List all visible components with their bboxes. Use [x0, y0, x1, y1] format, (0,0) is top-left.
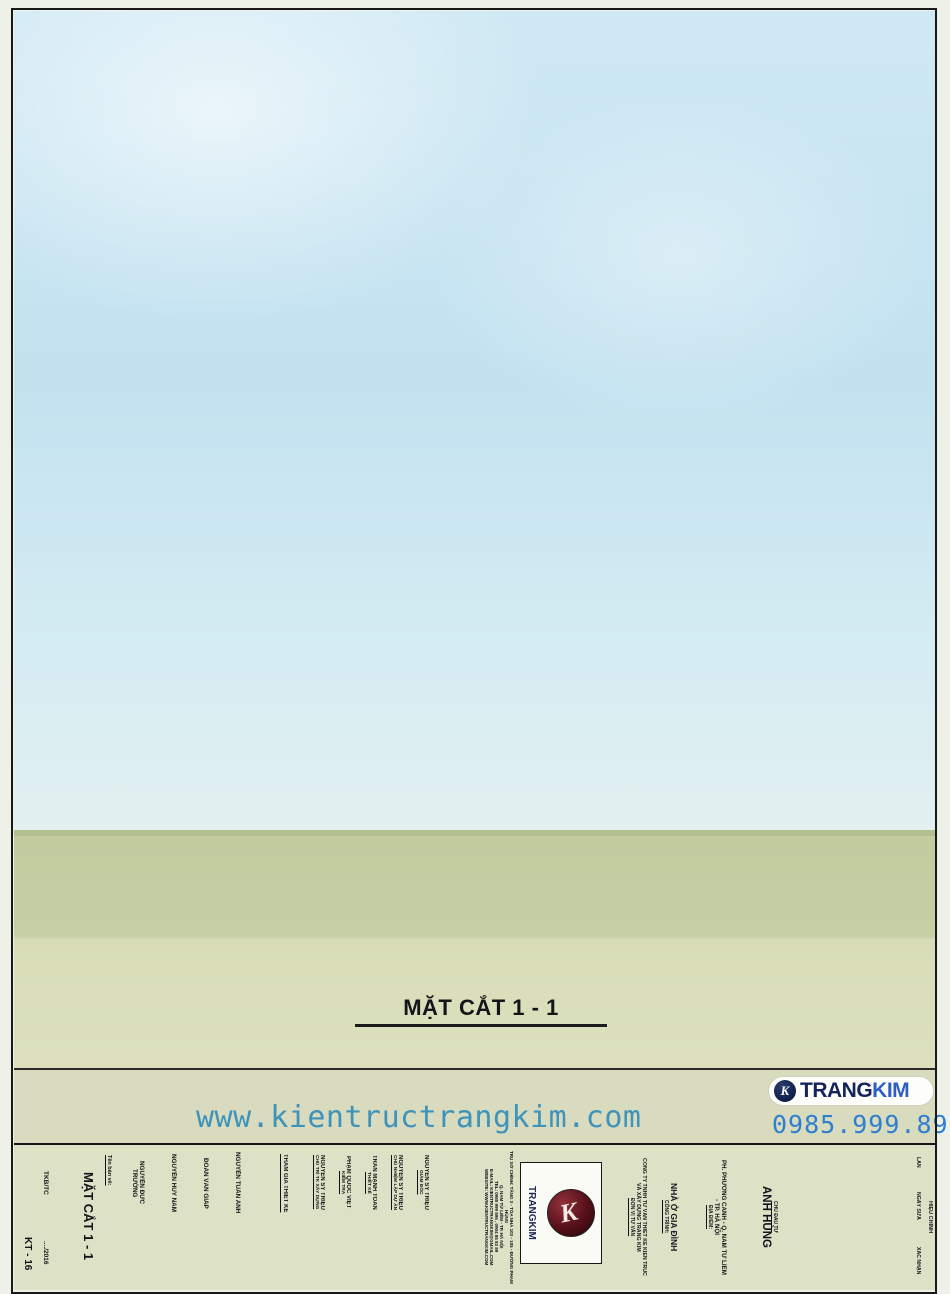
role-label: CHỦ NHIỆM LẬP DỰ ÁN	[392, 1148, 397, 1217]
sheet-date: ..../2016	[34, 1221, 49, 1285]
watermark-url: www.kientructrangkim.com	[196, 1100, 641, 1135]
consultant-line: CÔNG TY TNHH TƯ VẤN THIẾT KẾ KIẾN TRÚC	[641, 1148, 647, 1286]
company-info-line: TRỤ SỞ CHÍNH: TẦNG 3 - TÒA NHÀ 103 - 105…	[504, 1148, 514, 1286]
client-label: CHỦ ĐẦU TƯ	[772, 1148, 778, 1286]
consultant-label: ĐƠN VỊ TƯ VẤN	[629, 1148, 635, 1286]
logo-text-trang: TRANG	[800, 1079, 872, 1103]
company-info-line: Q. NAM TỪ LIÊM - TP. HÀ NỘI	[499, 1148, 504, 1286]
logo-box: TRANGKIM K	[520, 1162, 602, 1264]
role-name: NGUYỄN SỸ TRIỆU	[397, 1148, 403, 1217]
sky-background	[14, 11, 936, 830]
role-cell: TRẦN MẠNH TOÀN THIẾT KẾ	[353, 1148, 377, 1217]
rev-side-label: HIỆU CHỈNH	[923, 1148, 933, 1286]
rev-col-turn: LẦN	[909, 1149, 921, 1176]
rev-col-date: NGÀY SỬA	[909, 1181, 921, 1231]
role-cell: NGUYỄN SỸ TRIỆU GIÁM ĐỐC	[405, 1148, 429, 1217]
role-cell: PHẠM QUỐC VIỆT KIỂM TRA	[327, 1148, 351, 1217]
trangkim-logo: K TRANG KIM	[768, 1076, 934, 1106]
role-name: PHẠM QUỐC VIỆT	[345, 1148, 351, 1217]
participant-name: NGUYỄN ĐỨC TRƯỜNG	[117, 1149, 145, 1217]
sheet-number: KT - 16	[17, 1221, 33, 1287]
ground-background	[14, 830, 936, 1068]
participant-name: NGUYỄN HUY NAM	[149, 1149, 177, 1217]
phone-number: 0985.999.895	[772, 1110, 950, 1139]
role-name: NGUYỄN SỸ TRIỆU	[319, 1148, 325, 1217]
trangkim-emblem-icon: K	[547, 1189, 595, 1237]
design-stage: TKB/TC	[34, 1150, 49, 1216]
project-label: CÔNG TRÌNH:	[663, 1148, 669, 1286]
role-name: NGUYỄN SỸ TRIỆU	[423, 1148, 429, 1217]
participants-label: THAM GIA THIẾT KẾ	[252, 1149, 288, 1217]
rev-col-confirm: XÁC NHẬN	[909, 1236, 921, 1286]
role-name: TRẦN MẠNH TOÀN	[371, 1148, 377, 1217]
location-cell: PH. PHƯƠNG CANH - Q. NAM TỪ LIÊM - TP. H…	[682, 1148, 727, 1286]
project-cell: NHÀ Ở GIA ĐÌNH CÔNG TRÌNH:	[649, 1148, 679, 1286]
consultant-cell: CÔNG TY TNHH TƯ VẤN THIẾT KẾ KIẾN TRÚC V…	[606, 1148, 647, 1286]
logo-box-text: TRANGKIM	[524, 1168, 537, 1258]
location-label: ĐỊA ĐIỂM:	[707, 1148, 713, 1286]
company-info: TRỤ SỞ CHÍNH: TẦNG 3 - TÒA NHÀ 103 - 105…	[464, 1148, 514, 1286]
participant-name: NGUYỄN TUẤN ANH	[213, 1149, 241, 1217]
role-cell: NGUYỄN SỸ TRIỆU CHỦ NHIỆM LẬP DỰ ÁN	[379, 1148, 403, 1217]
client-name: ANH HÙNG	[760, 1148, 772, 1286]
company-info-line: TEL: 0985 999 895 , 0904 85 83 89	[494, 1148, 499, 1286]
drawing-name: MẶT CẮT 1 - 1	[66, 1147, 96, 1286]
project-name: NHÀ Ở GIA ĐÌNH	[669, 1148, 679, 1286]
logo-text-kim: KIM	[872, 1079, 909, 1103]
trangkim-swirl-icon: K	[774, 1080, 796, 1102]
participant-name: ĐOÀN VĂN GIÁP	[181, 1149, 209, 1217]
location-line: - TP. HÀ NỘI	[713, 1148, 720, 1286]
role-label: CHỦ TRÌ TK XÂY DỰNG	[314, 1148, 319, 1217]
drawing-title: MẶT CẮT 1 - 1	[355, 995, 607, 1027]
company-info-line: WEBSITE: WWW.KIENTRUCTRANGKIM.COM	[484, 1148, 489, 1286]
company-info-line: E-MAIL: KIENTRUCTRANGKIM@GMAIL.COM	[489, 1148, 494, 1286]
location-line: PH. PHƯƠNG CANH - Q. NAM TỪ LIÊM	[720, 1148, 727, 1286]
role-cell: NGUYỄN SỸ TRIỆU CHỦ TRÌ TK XÂY DỰNG	[301, 1148, 325, 1217]
client-cell: CHỦ ĐẦU TƯ ANH HÙNG	[730, 1148, 778, 1286]
drawing-name-label: Tên bản vẽ:	[99, 1149, 112, 1191]
drawing-sheet: MẶT CẮT 1 - 1 www.kientructrangkim.com K…	[0, 0, 950, 1294]
